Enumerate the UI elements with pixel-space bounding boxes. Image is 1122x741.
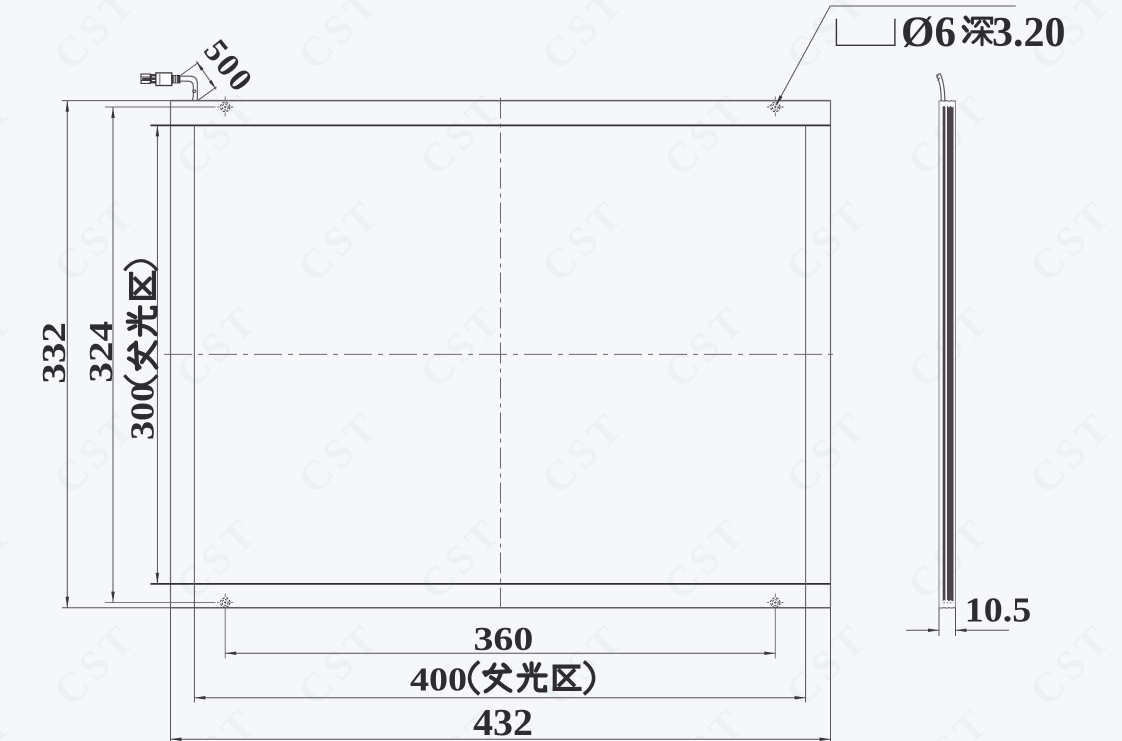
svg-text:332: 332 [35, 322, 73, 384]
svg-text:10.5: 10.5 [965, 590, 1031, 629]
svg-text:400: 400 [410, 660, 467, 698]
svg-text:432: 432 [473, 702, 533, 741]
svg-text:Ø6: Ø6 [901, 9, 956, 56]
svg-text:324: 324 [82, 321, 120, 383]
svg-text:3.20: 3.20 [992, 10, 1066, 56]
svg-text:360: 360 [473, 620, 533, 658]
svg-text:300: 300 [123, 383, 161, 440]
